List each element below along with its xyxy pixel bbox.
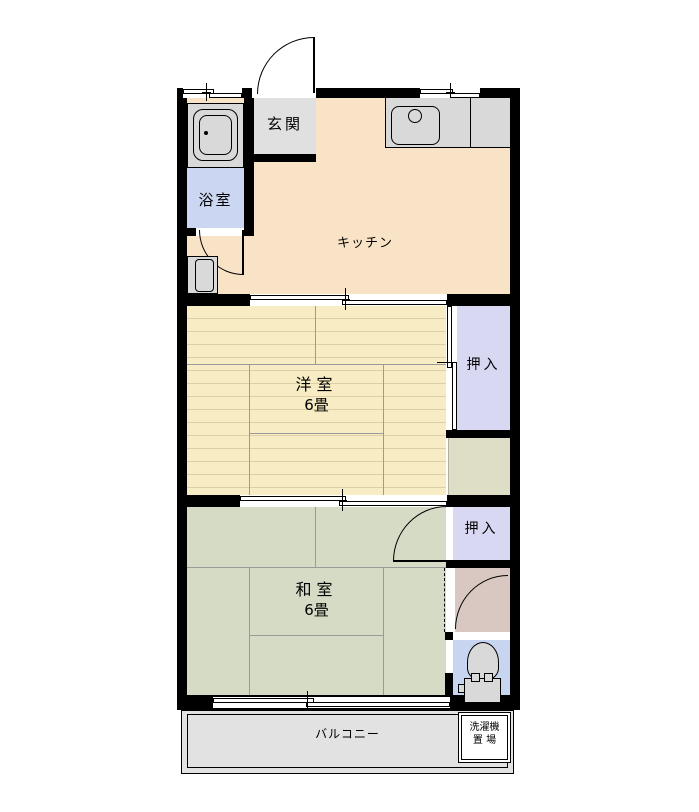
window-rail	[209, 93, 242, 98]
sliding-door-rail	[339, 501, 447, 506]
toilet-tank	[464, 678, 501, 703]
hallway-opening	[446, 568, 455, 632]
sliding-window-rail	[306, 702, 450, 707]
tatami-grid-line	[187, 567, 446, 568]
toilet-doorway	[453, 632, 510, 640]
bathtub-inner	[199, 115, 232, 155]
appliance-icon	[195, 259, 214, 292]
wall-toilet-stub	[445, 632, 453, 640]
closet-lower-doorway	[446, 507, 453, 560]
closet-sliding-tick	[437, 358, 457, 367]
wall-top	[316, 88, 420, 98]
floor-plan: 洗濯機 置 場 玄関 浴室 キッチン 洋室 6畳 押入 押入 和室 6畳 バルコ…	[0, 0, 699, 812]
tatami-grid-line	[315, 507, 316, 567]
sliding-door-rail	[342, 300, 447, 305]
genkan-step	[254, 154, 316, 162]
closet-lower-label: 押入	[453, 522, 510, 537]
bathroom-label: 浴室	[187, 192, 244, 209]
wall-top	[242, 88, 252, 98]
kitchen-label: キッチン	[330, 237, 400, 251]
western-room-name: 洋室	[187, 376, 446, 394]
toilet-handle	[458, 684, 465, 693]
genkan-label: 玄関	[254, 116, 316, 133]
sliding-door-rail	[240, 496, 346, 501]
toilet-hinge	[471, 673, 480, 682]
floor-grid-line	[315, 306, 316, 364]
balcony-label: バルコニー	[181, 728, 514, 741]
japanese-room-name: 和室	[187, 581, 446, 599]
japanese-room-label: 和室 6畳	[187, 581, 446, 618]
western-room-label: 洋室 6畳	[187, 376, 446, 413]
closet-upper-label: 押入	[457, 358, 510, 373]
wall-closet-lower-bottom	[446, 560, 510, 568]
service-area	[448, 438, 510, 495]
faucet-icon	[408, 109, 422, 123]
wall-right	[510, 88, 520, 710]
floor-grid-line	[187, 364, 446, 365]
western-room-size: 6畳	[187, 397, 446, 414]
wall-bath-stub	[187, 228, 196, 236]
toilet-side-gap	[446, 640, 453, 673]
sliding-door-rail	[250, 295, 349, 300]
sliding-door-tick	[338, 489, 347, 511]
bathtub-drain	[204, 131, 208, 135]
floor-grid-line	[249, 433, 384, 434]
tatami-grid-line	[249, 635, 384, 636]
sliding-window-rail	[213, 698, 314, 703]
sliding-door-tick	[341, 288, 350, 310]
wall-closet-upper-bottom	[446, 430, 510, 438]
toilet-hinge	[484, 673, 493, 682]
wall-top	[480, 88, 520, 98]
wall-toilet-stub	[445, 673, 453, 695]
wall-bath-genkan	[244, 98, 254, 236]
counter-divider	[470, 98, 471, 148]
entrance-door-arc	[257, 37, 314, 94]
japanese-room-size: 6畳	[187, 602, 446, 619]
window-tick	[202, 83, 211, 101]
wall-left	[177, 88, 187, 710]
